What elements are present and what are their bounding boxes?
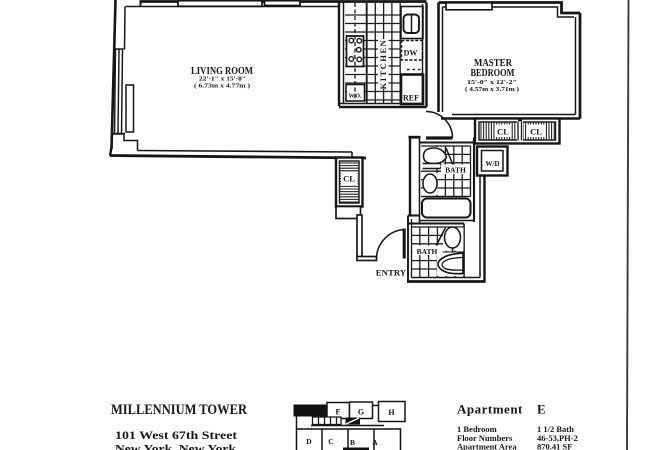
svg-text:W/D: W/D: [486, 160, 500, 168]
svg-text:( 6.73m x 4.77m ): ( 6.73m x 4.77m ): [194, 83, 250, 90]
svg-text:CL: CL: [343, 174, 355, 184]
svg-text:22'-1" x 15'-8": 22'-1" x 15'-8": [199, 76, 246, 83]
svg-text:E: E: [537, 402, 546, 417]
svg-text:MILLENNIUM TOWER: MILLENNIUM TOWER: [111, 402, 247, 418]
svg-text:A: A: [372, 438, 378, 447]
svg-text:H: H: [388, 408, 395, 417]
svg-text:CL: CL: [497, 127, 509, 137]
svg-text:BEDROOM: BEDROOM: [471, 68, 515, 79]
svg-text:D: D: [306, 437, 312, 446]
svg-text:( 4.57m x 3.71m ): ( 4.57m x 3.71m ): [465, 86, 519, 93]
svg-text:101 West 67th Street: 101 West 67th Street: [115, 430, 237, 442]
svg-text:REF: REF: [403, 94, 419, 103]
svg-text:CL: CL: [530, 127, 542, 137]
svg-text:BATH: BATH: [417, 247, 438, 256]
svg-text:G: G: [358, 408, 364, 417]
svg-text:Apartment: Apartment: [457, 402, 523, 417]
svg-text:BATH: BATH: [445, 166, 466, 175]
svg-text:C: C: [328, 437, 333, 446]
svg-text:KITCHEN: KITCHEN: [378, 39, 388, 90]
svg-text:B: B: [350, 438, 355, 447]
svg-text:15'-0" x 12'-2": 15'-0" x 12'-2": [467, 79, 517, 86]
svg-text:New York, New York: New York, New York: [115, 444, 237, 450]
svg-text:Apartment Area: Apartment Area: [457, 442, 517, 450]
svg-text:ENTRY: ENTRY: [376, 268, 407, 278]
svg-text:F: F: [336, 408, 341, 417]
svg-text:870.41 SF: 870.41 SF: [537, 442, 572, 450]
svg-text:DW: DW: [404, 49, 418, 58]
